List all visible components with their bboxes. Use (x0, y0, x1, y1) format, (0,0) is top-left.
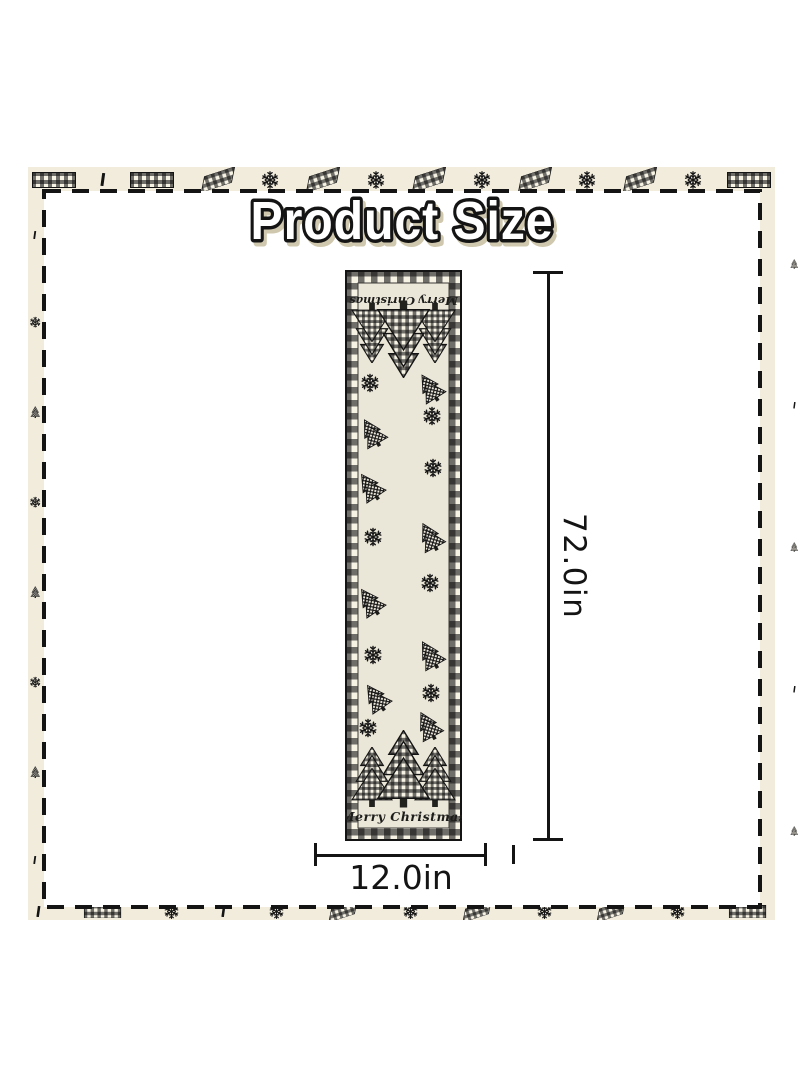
tick-mark (512, 845, 515, 864)
table-runner-image: Merry Christmas Merry Christmas (345, 270, 462, 841)
plaid-tree-icon (790, 826, 799, 836)
border-band-right (786, 192, 800, 903)
plaid-tick-icon (793, 402, 796, 409)
plaid-tick-icon (33, 231, 37, 239)
width-dimension-label: 12.0in (326, 858, 476, 897)
plaid-tree-icon (790, 259, 799, 269)
plaid-tick-icon (33, 856, 37, 864)
height-dimension-line (547, 272, 550, 840)
width-dimension-cap-right (484, 843, 487, 866)
plaid-tick-icon (793, 686, 796, 693)
product-size-infographic: Product Size Product Size Merry Christma… (0, 0, 800, 1091)
runner-bottom-text: Merry Christmas (345, 809, 462, 824)
width-dimension-line (316, 854, 486, 857)
page-title: Product Size Product Size (242, 189, 562, 257)
height-dimension-cap-bottom (533, 838, 563, 841)
height-dimension-cap-top (533, 271, 563, 274)
page-title-text: Product Size (251, 191, 554, 251)
width-dimension-cap-left (314, 843, 317, 866)
height-dimension-label: 72.0in (556, 513, 592, 619)
plaid-tree-icon (790, 542, 799, 552)
